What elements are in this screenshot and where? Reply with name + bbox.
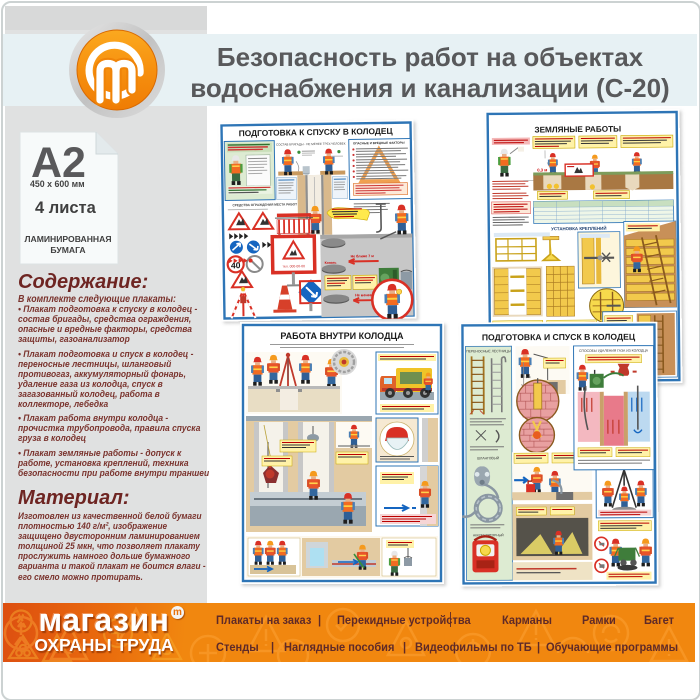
svg-text:6 м: 6 м: [526, 375, 531, 379]
svg-text:ПЕРЕНОСНЫЕ ЛЕСТНИЦЫ: ПЕРЕНОСНЫЕ ЛЕСТНИЦЫ: [466, 349, 511, 353]
svg-text:ОПАСНЫЕ И ВРЕДНЫЕ ФАКТОРЫ: ОПАСНЫЕ И ВРЕДНЫЕ ФАКТОРЫ: [353, 141, 405, 146]
svg-text:Не ближе 7 м: Не ближе 7 м: [351, 254, 375, 258]
svg-text:0,3 м: 0,3 м: [537, 167, 547, 172]
svg-text:ШЛАНГОВЫЙ: ШЛАНГОВЫЙ: [477, 456, 500, 460]
svg-text:тел. 000-00-00: тел. 000-00-00: [282, 264, 305, 268]
svg-text:УСТАНОВКА КРЕПЛЕНИЙ: УСТАНОВКА КРЕПЛЕНИЙ: [551, 226, 606, 232]
svg-text:СПОСОБЫ УДАЛЕНИЯ ГАЗА ИЗ КОЛОД: СПОСОБЫ УДАЛЕНИЯ ГАЗА ИЗ КОЛОДЦА: [579, 349, 649, 353]
svg-text:ПОДГОТОВКА И СПУСК В КОЛОДЕЦ: ПОДГОТОВКА И СПУСК В КОЛОДЕЦ: [482, 332, 636, 343]
svg-text:ЗЕМЛЯНЫЕ РАБОТЫ: ЗЕМЛЯНЫЕ РАБОТЫ: [534, 125, 621, 135]
svg-text:РАБОТА ВНУТРИ КОЛОДЦА: РАБОТА ВНУТРИ КОЛОДЦА: [280, 331, 404, 341]
svg-text:Копать: Копать: [325, 261, 337, 265]
